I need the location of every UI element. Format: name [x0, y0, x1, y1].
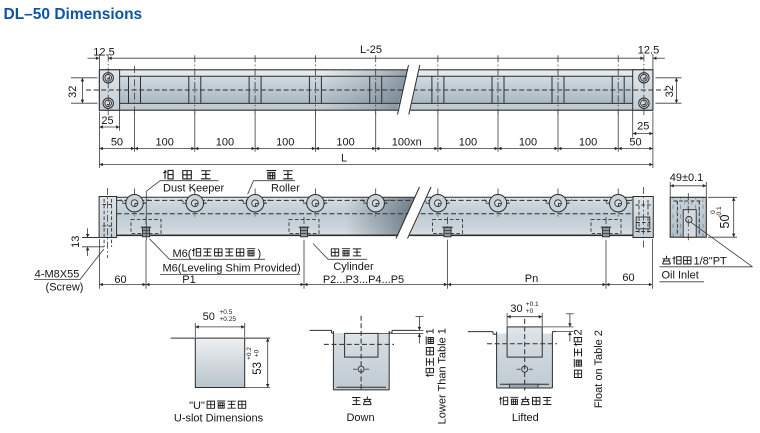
svg-text:100: 100	[276, 136, 294, 148]
svg-text:100: 100	[155, 136, 173, 148]
svg-text:+0: +0	[526, 308, 534, 315]
svg-text:2: 2	[572, 329, 584, 335]
svg-text:(Screw): (Screw)	[46, 282, 84, 294]
svg-text:"U": "U"	[189, 400, 205, 412]
svg-text:Lower Than Table 1: Lower Than Table 1	[436, 328, 448, 424]
svg-text:Dust Keeper: Dust Keeper	[163, 183, 224, 195]
svg-text:50: 50	[203, 311, 215, 323]
svg-text:Roller: Roller	[271, 183, 300, 195]
svg-text:30: 30	[510, 303, 522, 315]
svg-text:+0.5: +0.5	[220, 309, 233, 316]
svg-text:P1: P1	[182, 274, 195, 286]
svg-text:): )	[258, 248, 262, 260]
svg-text:+0.2: +0.2	[246, 347, 253, 360]
svg-text:Lifted: Lifted	[512, 412, 539, 424]
svg-text:100: 100	[459, 136, 477, 148]
svg-text:P2...P3...P4...P5: P2...P3...P4...P5	[323, 274, 404, 286]
svg-text:DL–50 Dimensions: DL–50 Dimensions	[4, 6, 143, 23]
svg-text:+0.1: +0.1	[526, 301, 539, 308]
svg-text:32: 32	[67, 86, 79, 98]
svg-text:M6(Leveling Shim Provided): M6(Leveling Shim Provided)	[163, 262, 301, 274]
svg-text:Cylinder: Cylinder	[333, 261, 374, 273]
svg-text:-0.1: -0.1	[716, 206, 723, 218]
svg-text:L-25: L-25	[360, 44, 382, 56]
svg-text:Oil Inlet: Oil Inlet	[662, 270, 699, 282]
svg-text:+0: +0	[253, 349, 260, 357]
svg-text:60: 60	[114, 274, 126, 286]
svg-text:12.5: 12.5	[93, 47, 114, 59]
svg-text:M6(: M6(	[173, 248, 192, 260]
svg-text:100: 100	[579, 136, 597, 148]
svg-text:L: L	[341, 153, 347, 165]
svg-text:100xn: 100xn	[392, 136, 422, 148]
svg-text:50: 50	[111, 136, 123, 148]
svg-text:50: 50	[629, 136, 641, 148]
svg-text:U-slot Dimensions: U-slot Dimensions	[174, 413, 264, 425]
svg-text:1: 1	[424, 328, 436, 334]
svg-text:Float on Table 2: Float on Table 2	[593, 330, 605, 408]
svg-text:13: 13	[70, 236, 82, 248]
svg-text:+0.25: +0.25	[220, 316, 237, 323]
svg-text:25: 25	[101, 115, 113, 127]
svg-text:12.5: 12.5	[638, 44, 659, 56]
svg-text:100: 100	[519, 136, 537, 148]
svg-text:53: 53	[252, 362, 264, 375]
svg-text:Down: Down	[346, 412, 374, 424]
svg-text:100: 100	[216, 136, 234, 148]
svg-text:4-M8X55: 4-M8X55	[35, 268, 80, 280]
svg-text:49±0.1: 49±0.1	[670, 172, 704, 184]
svg-text:60: 60	[622, 272, 634, 284]
svg-text:32: 32	[664, 85, 676, 97]
svg-text:1/8"PT: 1/8"PT	[694, 255, 728, 267]
svg-text:25: 25	[637, 120, 649, 132]
svg-text:100: 100	[336, 136, 354, 148]
svg-text:Pn: Pn	[525, 273, 538, 285]
